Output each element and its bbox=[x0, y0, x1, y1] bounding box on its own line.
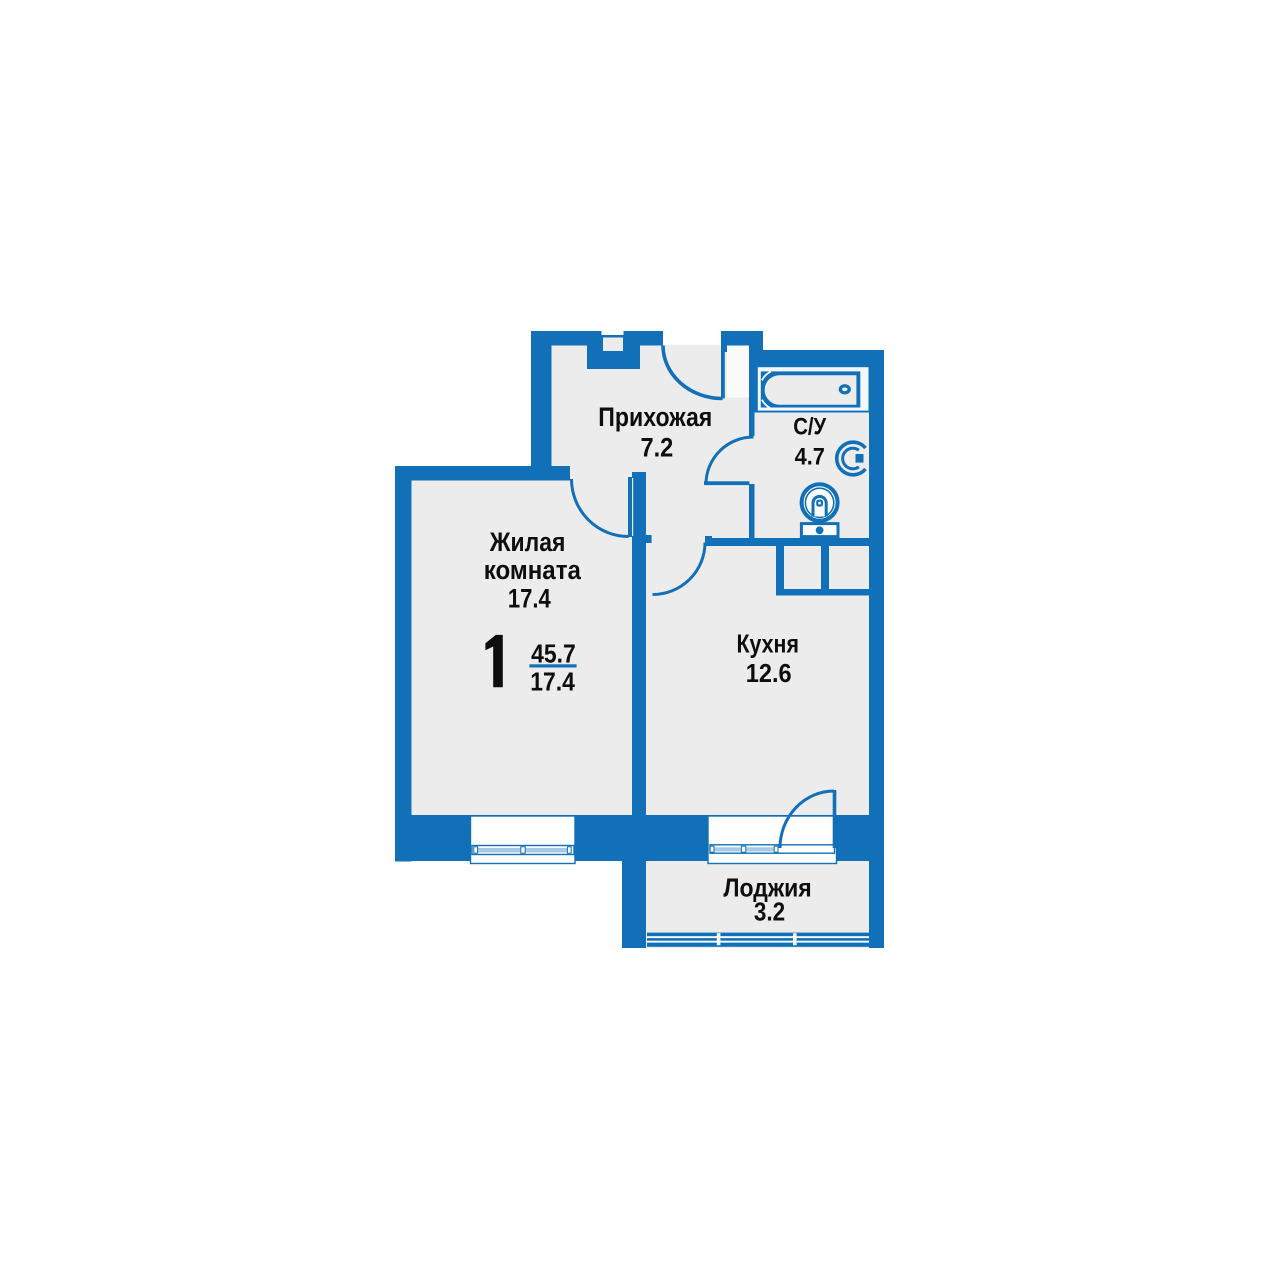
svg-text:С/У: С/У bbox=[793, 414, 827, 441]
svg-text:комната: комната bbox=[484, 555, 582, 585]
svg-text:45.7: 45.7 bbox=[531, 638, 576, 668]
svg-text:4.7: 4.7 bbox=[795, 444, 825, 471]
svg-text:17.4: 17.4 bbox=[530, 667, 575, 697]
svg-text:17.4: 17.4 bbox=[508, 583, 551, 613]
svg-text:Кухня: Кухня bbox=[737, 629, 799, 659]
svg-text:Прихожая: Прихожая bbox=[598, 402, 712, 432]
svg-text:7.2: 7.2 bbox=[641, 432, 674, 462]
svg-text:3.2: 3.2 bbox=[754, 897, 785, 927]
svg-text:12.6: 12.6 bbox=[746, 658, 792, 688]
svg-text:Жилая: Жилая bbox=[489, 527, 565, 557]
